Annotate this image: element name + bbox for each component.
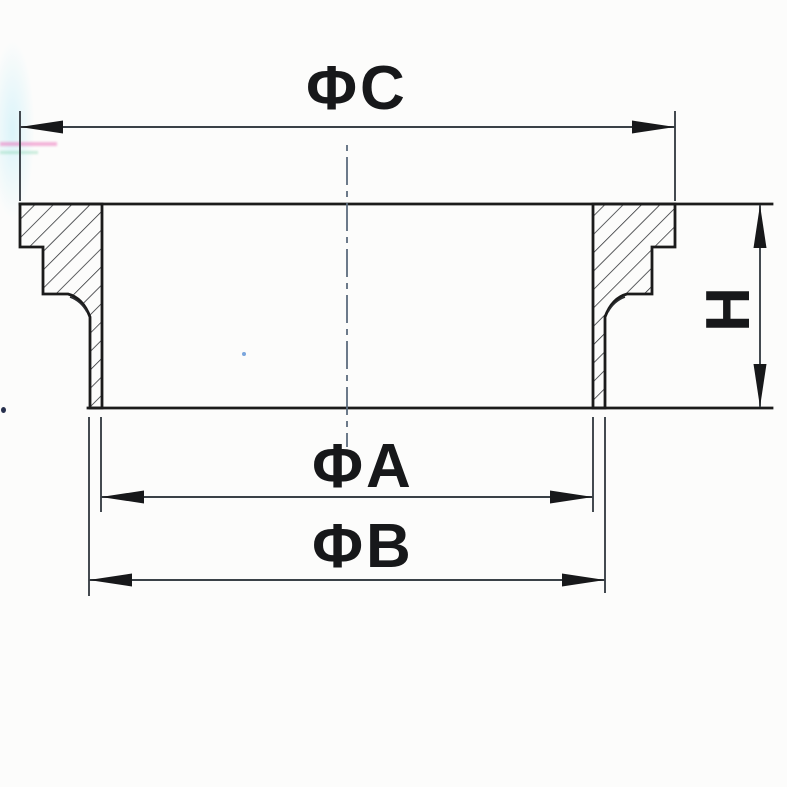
dim-label-phi-a: ΦA (263, 436, 463, 498)
dim-h-arrow-bottom (754, 364, 767, 407)
dim-label-h: H (698, 248, 760, 368)
dim-b-arrow-left (89, 574, 132, 587)
part-outline (20, 204, 772, 408)
dim-label-phi-b: ΦB (263, 516, 463, 578)
dim-c-arrow-left (20, 121, 63, 134)
left-flange-section (20, 204, 102, 408)
dim-c-arrow-right (632, 121, 675, 134)
dim-a-arrow-right (550, 491, 593, 504)
right-flange-section (593, 204, 675, 408)
dim-a-arrow-left (101, 491, 144, 504)
dim-label-phi-c: ΦC (257, 58, 457, 120)
dim-b-arrow-right (562, 574, 605, 587)
dim-h-arrow-top (754, 205, 767, 248)
drawing-sheet: ΦC ΦA ΦB H (0, 0, 787, 787)
